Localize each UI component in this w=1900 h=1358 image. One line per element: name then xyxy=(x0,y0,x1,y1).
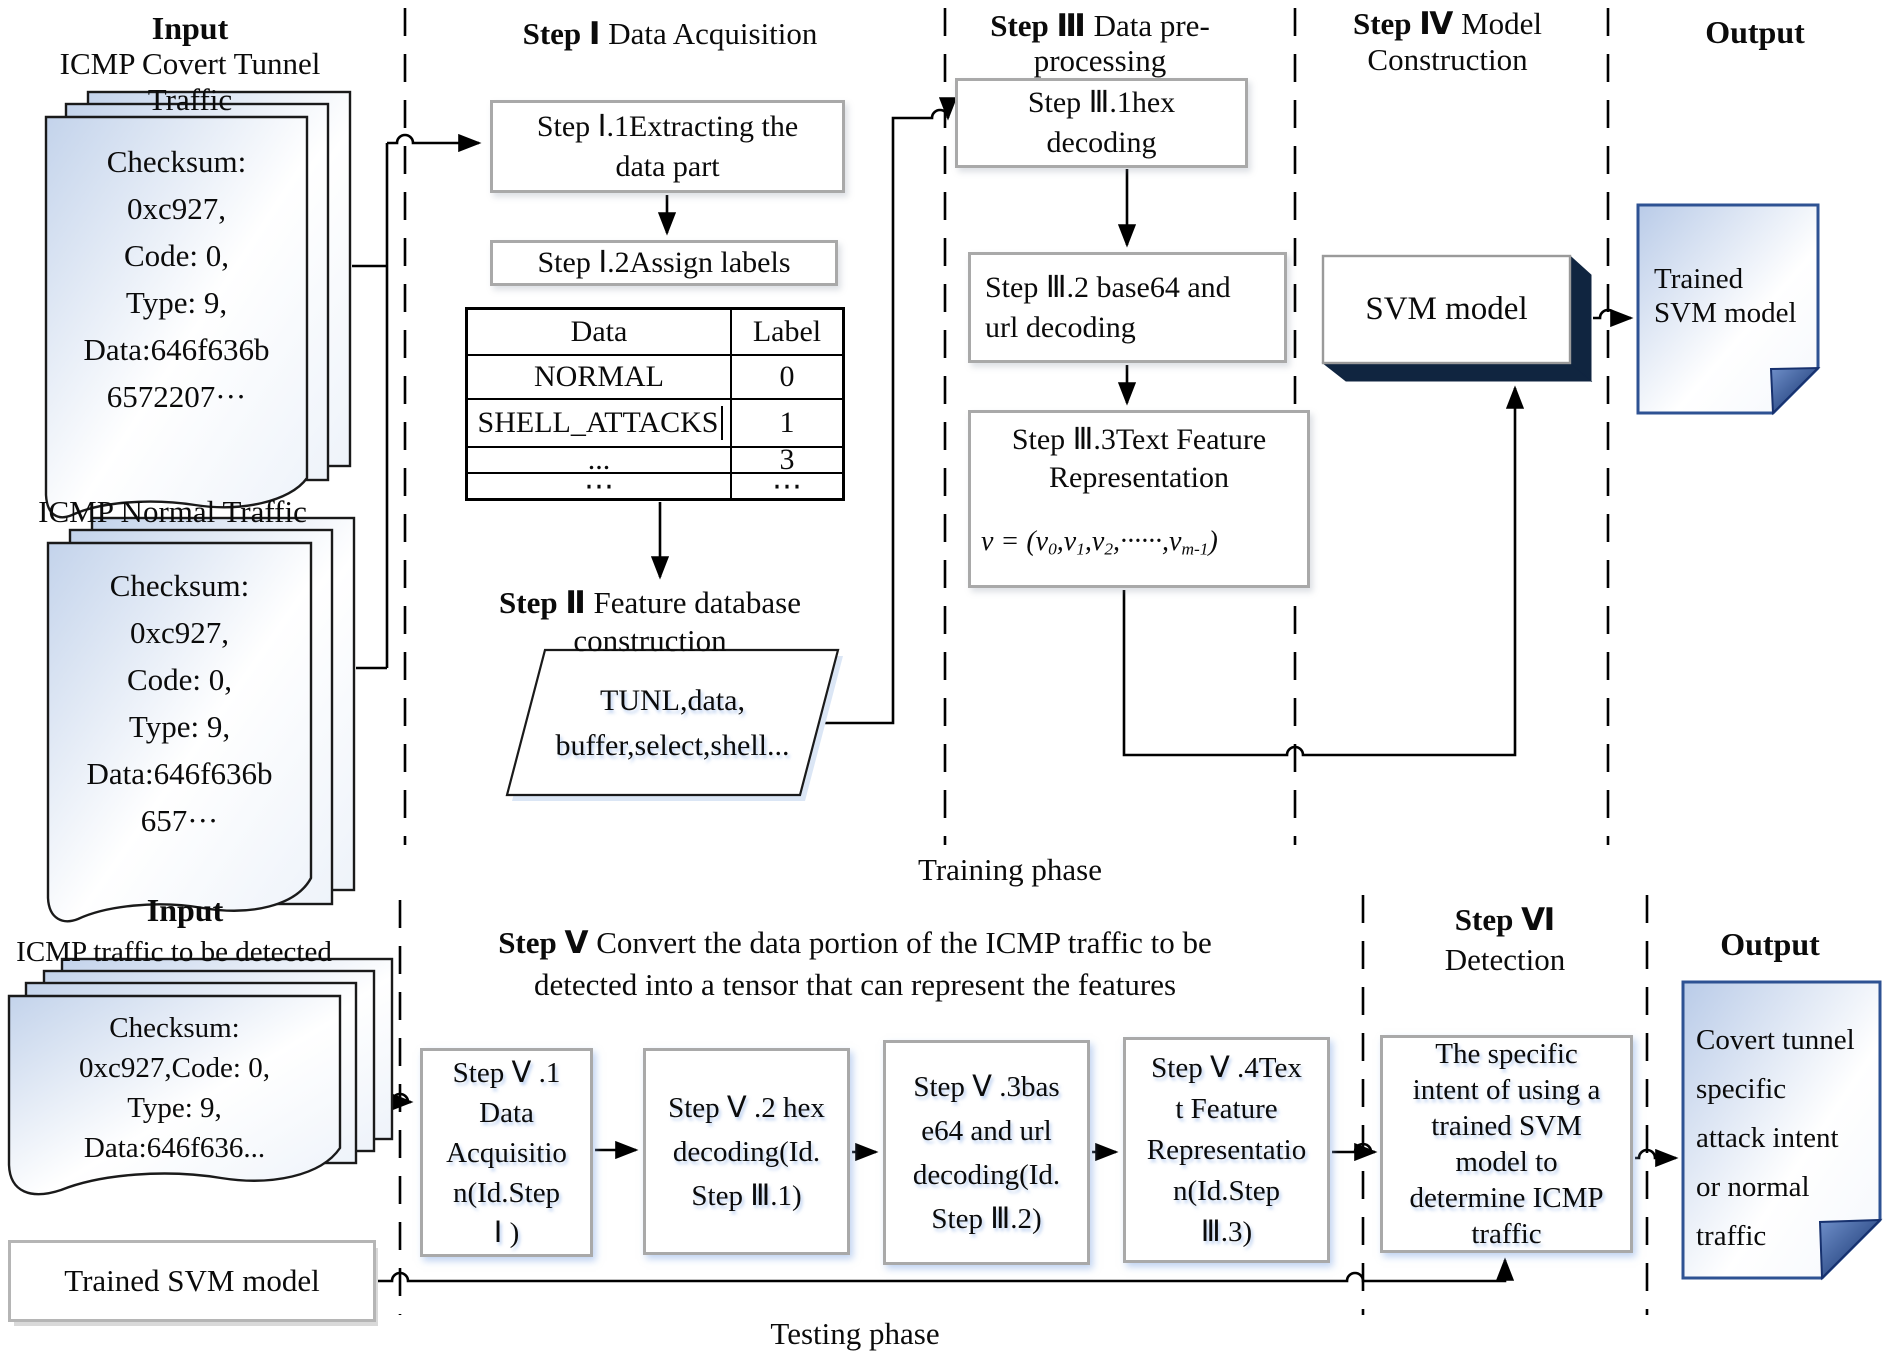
doc-line: Checksum: xyxy=(48,562,311,609)
text-line: Representatio xyxy=(1147,1130,1306,1171)
text-line: decoding xyxy=(1047,123,1157,163)
doc-line: Checksum: xyxy=(9,1008,340,1048)
step1-title-bold: Step Ⅰ xyxy=(523,16,601,51)
detect-traffic-label: ICMP traffic to be detected xyxy=(0,936,348,969)
step4-title-line2: Construction xyxy=(1300,42,1595,78)
doc-line: Type: 9, xyxy=(48,703,311,750)
text-line: trained SVM xyxy=(1431,1108,1582,1144)
testing-phase-label: Testing phase xyxy=(745,1316,965,1352)
step4-title: Step Ⅳ Model Construction xyxy=(1300,6,1595,78)
flowchart-diagram: Input ICMP Covert Tunnel Traffic Checksu… xyxy=(0,0,1900,1358)
step2-title: Step Ⅱ Feature database construction xyxy=(440,584,860,660)
text-line: Covert tunnel xyxy=(1696,1016,1874,1065)
doc-line: 0xc927,Code: 0, xyxy=(9,1048,340,1088)
trained-svm-note-text: Trained SVM model xyxy=(1654,262,1814,330)
labels-table: Data Label NORMAL 0 SHELL_ATTACKS 1 ... … xyxy=(465,307,845,501)
step3-title-line2: processing xyxy=(950,43,1250,78)
doc-line: Type: 9, xyxy=(9,1088,340,1128)
trained-model-box-label: Trained SVM model xyxy=(64,1263,319,1299)
doc-line: 0xc927, xyxy=(46,185,307,232)
doc-line: Data:646f636... xyxy=(9,1128,340,1168)
doc-line: Data:646f636b xyxy=(46,326,307,373)
normal-traffic-label: ICMP Normal Traffic xyxy=(0,494,345,530)
doc-line: 0xc927, xyxy=(48,609,311,656)
step5-box3: Step Ⅴ .3bas e64 and url decoding(Id. St… xyxy=(883,1040,1090,1265)
feature-vector-formula: v = (v0,v1,v2,······,vm-1) xyxy=(971,523,1218,568)
testing-output-title: Output xyxy=(1670,926,1870,963)
arrow-svm-to-output xyxy=(1593,310,1631,318)
step2-title-line2: construction xyxy=(440,622,860,660)
text-line: Data xyxy=(479,1093,534,1133)
table-cell: 0 xyxy=(730,354,842,398)
training-output-title: Output xyxy=(1655,14,1855,51)
text-line: url decoding xyxy=(985,308,1136,348)
text-line: Trained xyxy=(1654,262,1814,296)
text-line: specific xyxy=(1696,1065,1874,1114)
step5-box1: Step Ⅴ .1 Data Acquisitio n(Id.Step Ⅰ ) xyxy=(420,1048,593,1257)
step1-title-rest: Data Acquisition xyxy=(600,16,817,51)
text-line: Acquisitio xyxy=(446,1133,567,1173)
table-header-data: Data xyxy=(468,310,730,354)
text-line: Step Ⅴ .3bas xyxy=(913,1065,1059,1109)
text-line: Step Ⅲ.2) xyxy=(931,1197,1041,1241)
text-line: Step Ⅲ.1hex xyxy=(1028,83,1175,123)
step1-box2: Step Ⅰ.2Assign labels xyxy=(490,240,838,286)
covert-doc-text: Checksum: 0xc927, Code: 0, Type: 9, Data… xyxy=(46,138,307,420)
text-line: Step Ⅴ .1 xyxy=(453,1053,561,1093)
svm-box-bottom-face xyxy=(1323,363,1591,381)
table-header-label: Label xyxy=(730,310,842,354)
step3-title-rest: Data pre- xyxy=(1086,8,1210,43)
step4-title-line1: Step Ⅳ Model xyxy=(1300,6,1595,42)
text-line: t Feature xyxy=(1175,1089,1277,1130)
text-line: Step Ⅴ .2 hex xyxy=(668,1086,825,1130)
text-line: Step Ⅲ.3Text Feature xyxy=(1012,421,1266,459)
text-line: Step Ⅰ.1Extracting the xyxy=(537,107,798,147)
table-cell: 1 xyxy=(730,398,842,446)
step2-title-bold: Step Ⅱ xyxy=(499,585,586,620)
text-line: Step Ⅴ .4Tex xyxy=(1151,1048,1302,1089)
step6-title-bold: Step Ⅵ xyxy=(1390,900,1620,940)
doc-line: Code: 0, xyxy=(48,656,311,703)
training-input-title: Input xyxy=(90,10,290,47)
text-line: TUNL,data, xyxy=(520,678,825,723)
doc-line: 6572207··· xyxy=(46,373,307,420)
detect-doc-text: Checksum: 0xc927,Code: 0, Type: 9, Data:… xyxy=(9,1008,340,1168)
step3-title-bold: Step Ⅲ xyxy=(990,8,1086,43)
step2-title-line1: Step Ⅱ Feature database xyxy=(440,584,860,622)
step5-title-line2: detected into a tensor that can represen… xyxy=(400,964,1310,1006)
table-cell-text: SHELL_ATTACKS xyxy=(475,406,724,440)
table-cell: ⋯ xyxy=(730,472,842,498)
step3-box3: Step Ⅲ.3Text Feature Representation v = … xyxy=(968,410,1310,588)
svm-box-right-face xyxy=(1570,256,1591,381)
text-line: traffic xyxy=(1696,1212,1874,1261)
table-cell: ⋯ xyxy=(468,472,730,498)
text-line: n(Id.Step xyxy=(453,1173,560,1213)
arrow-input-to-step1-1 xyxy=(387,135,479,143)
step6-title: Step Ⅵ Detection xyxy=(1390,900,1620,980)
step5-box2: Step Ⅴ .2 hex decoding(Id. Step Ⅲ.1) xyxy=(643,1048,850,1255)
step5-title: Step Ⅴ Convert the data portion of the I… xyxy=(400,922,1310,1006)
text-line: SVM model xyxy=(1654,296,1814,330)
doc-line: Code: 0, xyxy=(46,232,307,279)
text-line: Step Ⅲ.1) xyxy=(691,1174,801,1218)
step5-box4: Step Ⅴ .4Tex t Feature Representatio n(I… xyxy=(1123,1037,1330,1263)
step5-title-bold: Step Ⅴ xyxy=(498,925,588,960)
text-line: model to xyxy=(1455,1144,1557,1180)
doc-line: Data:646f636b xyxy=(48,750,311,797)
text-line: n(Id.Step xyxy=(1173,1171,1280,1212)
text-line: Ⅲ.3) xyxy=(1201,1212,1252,1253)
step1-title: Step Ⅰ Data Acquisition xyxy=(460,16,880,52)
text-line: attack intent xyxy=(1696,1114,1874,1163)
step6-title-line2: Detection xyxy=(1390,940,1620,980)
note-fold-icon xyxy=(1771,368,1818,413)
trained-model-box: Trained SVM model xyxy=(8,1240,376,1322)
text-line: or normal xyxy=(1696,1163,1874,1212)
covert-traffic-label: ICMP Covert Tunnel Traffic xyxy=(15,46,365,118)
step4-title-bold: Step Ⅳ xyxy=(1353,6,1453,41)
step2-title-rest: Feature database xyxy=(586,585,801,620)
arrow-step6-to-output xyxy=(1635,1150,1676,1158)
text-line: intent of using a xyxy=(1413,1072,1601,1108)
text-line: Representation xyxy=(1049,459,1229,497)
text-line: determine ICMP xyxy=(1409,1180,1603,1216)
step3-box2: Step Ⅲ.2 base64 and url decoding xyxy=(968,252,1287,363)
connector-input-bracket xyxy=(352,143,387,668)
testing-input-title: Input xyxy=(85,892,285,929)
step4-title-rest: Model xyxy=(1453,6,1542,41)
doc-line: 657··· xyxy=(48,797,311,844)
step3-title: Step Ⅲ Data pre- processing xyxy=(950,8,1250,78)
arrow-step5-4-to-step6 xyxy=(1332,1144,1375,1152)
text-line: decoding(Id. xyxy=(913,1153,1060,1197)
text-line: data part xyxy=(615,147,719,187)
doc-line: Checksum: xyxy=(46,138,307,185)
step3-box1: Step Ⅲ.1hex decoding xyxy=(955,78,1248,168)
text-line: Step Ⅲ.2 base64 and xyxy=(985,268,1231,308)
text-line: traffic xyxy=(1471,1216,1541,1252)
table-cell: NORMAL xyxy=(468,354,730,398)
doc-line: Type: 9, xyxy=(46,279,307,326)
text-line: Ⅰ ) xyxy=(494,1213,519,1253)
text-line: Step Ⅰ.2Assign labels xyxy=(537,243,790,283)
result-note-text: Covert tunnel specific attack intent or … xyxy=(1696,1016,1874,1261)
text-line: The specific xyxy=(1435,1036,1578,1072)
step5-title-rest: Convert the data portion of the ICMP tra… xyxy=(589,925,1212,960)
text-line: decoding(Id. xyxy=(673,1130,820,1174)
training-phase-label: Training phase xyxy=(890,852,1130,888)
step3-title-line1: Step Ⅲ Data pre- xyxy=(950,8,1250,43)
step5-title-line1: Step Ⅴ Convert the data portion of the I… xyxy=(400,922,1310,964)
table-cell: SHELL_ATTACKS xyxy=(468,398,730,446)
text-line: e64 and url xyxy=(921,1109,1051,1153)
step6-box: The specific intent of using a trained S… xyxy=(1380,1035,1633,1253)
normal-doc-text: Checksum: 0xc927, Code: 0, Type: 9, Data… xyxy=(48,562,311,844)
feature-db-text: TUNL,data, buffer,select,shell... xyxy=(520,678,825,768)
svm-model-label: SVM model xyxy=(1323,256,1570,363)
step1-box1: Step Ⅰ.1Extracting the data part xyxy=(490,100,845,193)
text-line: buffer,select,shell... xyxy=(520,723,825,768)
